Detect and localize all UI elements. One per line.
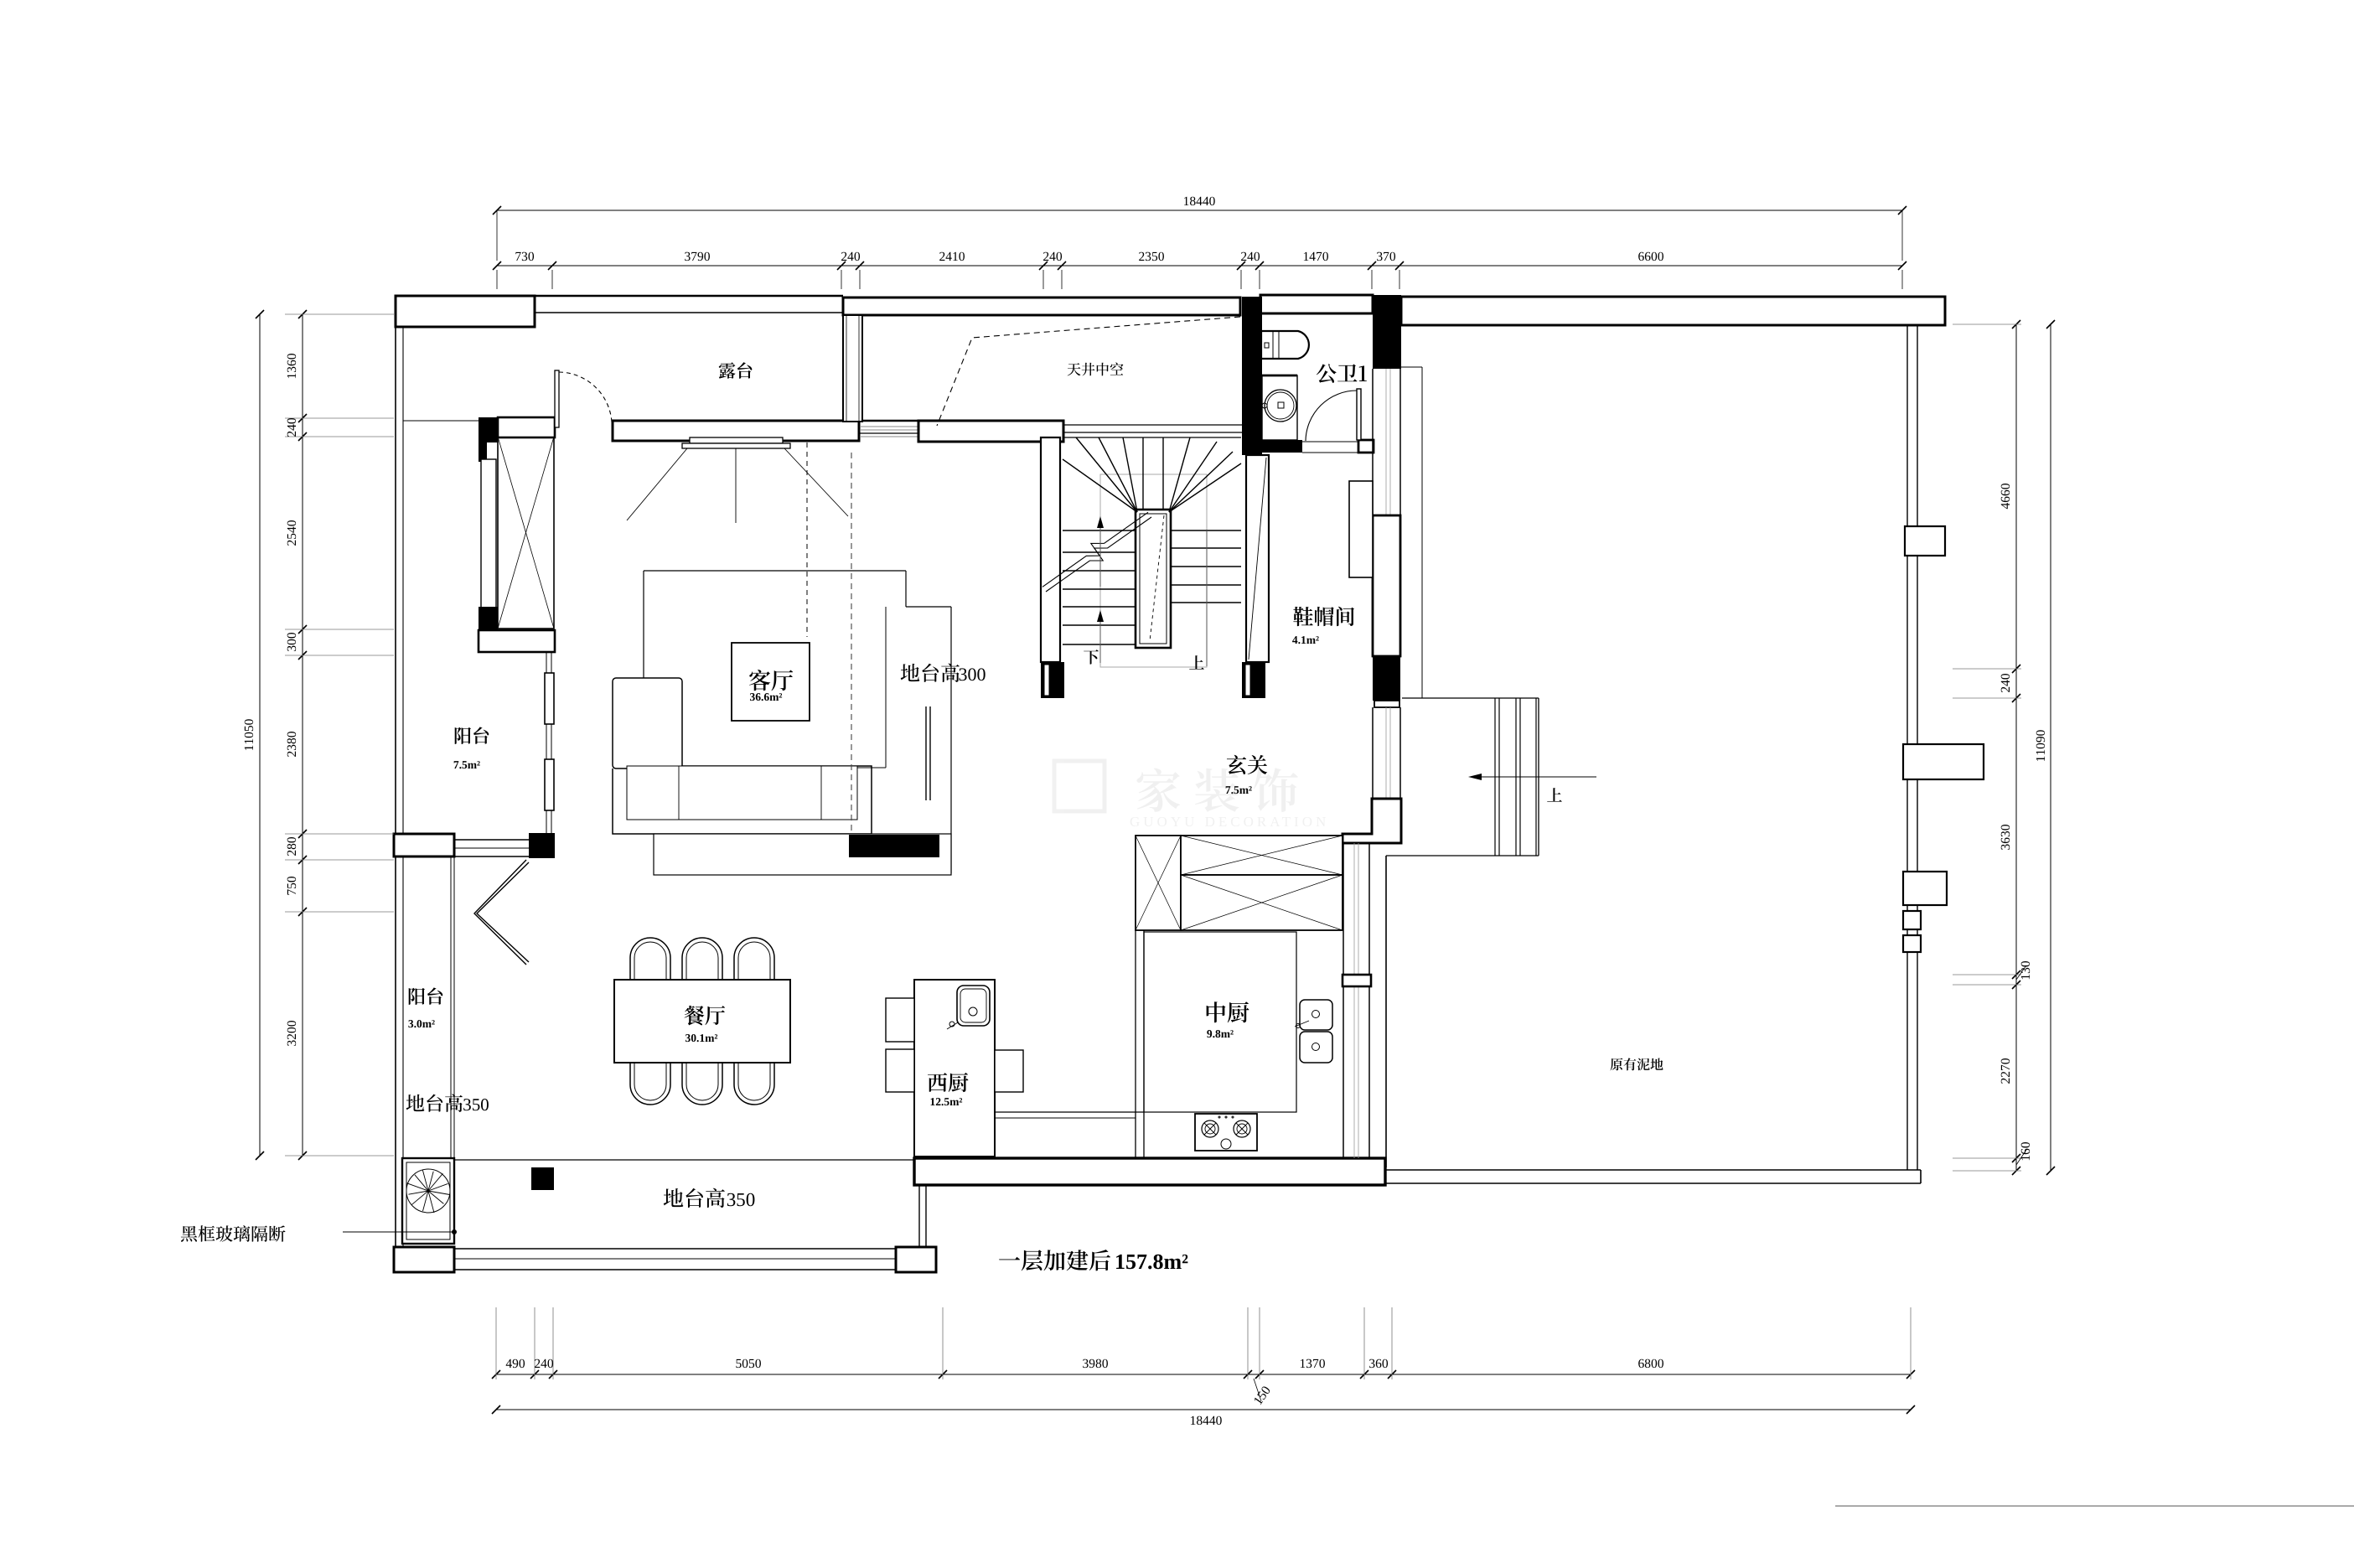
svg-text:GUOYU DECORATION: GUOYU DECORATION [1130, 814, 1329, 830]
